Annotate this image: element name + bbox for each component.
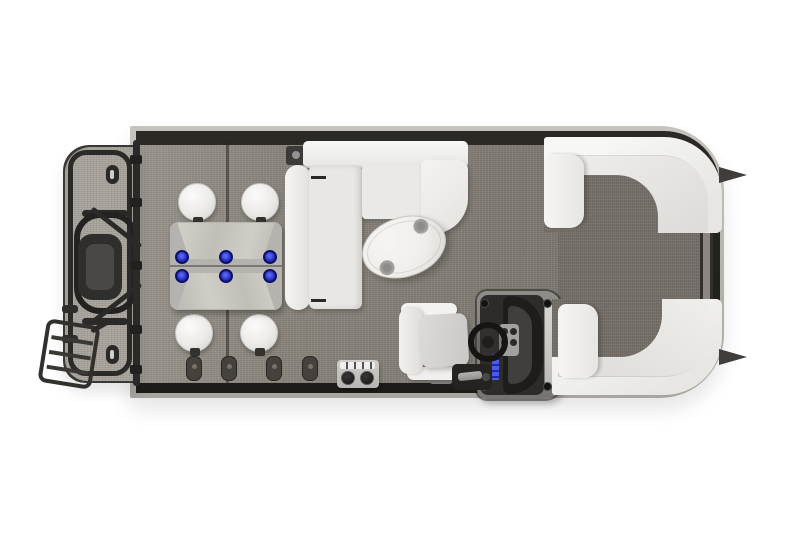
bow-gate <box>700 227 713 307</box>
ladder-rung <box>51 335 93 346</box>
sofa-mid-seat <box>362 165 421 219</box>
accessory-knob <box>341 371 355 385</box>
cleat <box>106 165 119 184</box>
lounger-center-seam <box>170 265 282 267</box>
hardware-knob <box>482 373 490 381</box>
boarding-ladder <box>40 318 110 394</box>
steering-wheel-hub <box>482 336 494 348</box>
stern-group <box>62 138 144 390</box>
gauge-dial <box>510 328 517 335</box>
lounger-cupholder-blue <box>175 269 189 283</box>
fence-clamp <box>130 325 142 334</box>
pedestal-stool <box>175 314 213 352</box>
cushion-seam-tick <box>311 299 326 302</box>
deck-accessory-box <box>337 360 379 388</box>
lounger-cupholder-blue <box>263 269 277 283</box>
ladder-rung <box>49 350 91 361</box>
nose-cone-starboard <box>719 349 747 365</box>
sofa-chaise-seat <box>309 165 362 309</box>
bow-couch-starboard <box>552 299 722 395</box>
rail-mount-pad <box>221 356 237 381</box>
sofa-corner-cupholder <box>292 151 300 159</box>
pedestal-stool <box>178 183 216 221</box>
chair-seat-cushion <box>419 313 470 368</box>
pad-bolt-dot <box>272 364 277 369</box>
fence-clamp <box>130 198 142 207</box>
deck-hardware-unit <box>452 364 492 390</box>
fence-clamp <box>130 365 142 374</box>
motor-cowl-top <box>86 244 114 290</box>
ladder-hinge <box>62 305 78 313</box>
pedestal-stool <box>240 314 278 352</box>
bow-couch-port <box>544 137 722 233</box>
ladder-rung <box>46 365 88 376</box>
console-bolt <box>543 382 552 391</box>
accessory-box-slot-strip <box>340 362 375 369</box>
console-bolt <box>480 299 489 308</box>
lounger-cupholder-blue <box>219 269 233 283</box>
sofa-left-arm <box>285 165 311 310</box>
pad-bolt-dot <box>308 364 313 369</box>
pad-bolt-dot <box>227 364 232 369</box>
ladder-support-bar <box>90 319 110 333</box>
stool-base <box>255 348 265 356</box>
cushion-seam-tick <box>311 176 326 179</box>
fence-clamp <box>130 155 142 164</box>
cleat-slot <box>110 350 114 359</box>
hardware-silver-bar <box>458 371 483 381</box>
accessory-knob <box>360 371 374 385</box>
console-bolt <box>543 299 552 308</box>
nose-cone-port <box>719 167 747 183</box>
outboard-motor <box>78 234 122 300</box>
bow-couch-port-armrest <box>544 154 584 228</box>
rail-mount-pad <box>186 356 202 381</box>
pad-bolt-dot <box>192 364 197 369</box>
lounger-cupholder-blue <box>219 250 233 264</box>
lounger-cupholder-blue <box>175 250 189 264</box>
pedestal-stool <box>241 183 279 221</box>
rail-mount-pad <box>302 356 318 381</box>
gauge-dial <box>510 339 517 346</box>
bow-couch-starboard-armrest <box>558 304 598 378</box>
bow-walkway <box>558 222 712 310</box>
stool-base <box>190 348 200 356</box>
back-to-back-lounger <box>170 222 282 310</box>
steering-wheel <box>468 322 508 362</box>
lounger-cupholder-blue <box>263 250 277 264</box>
cleat-slot <box>110 170 114 179</box>
pontoon-boat-floorplan <box>0 0 800 533</box>
fence-clamp <box>130 261 142 270</box>
rail-mount-pad <box>266 356 282 381</box>
